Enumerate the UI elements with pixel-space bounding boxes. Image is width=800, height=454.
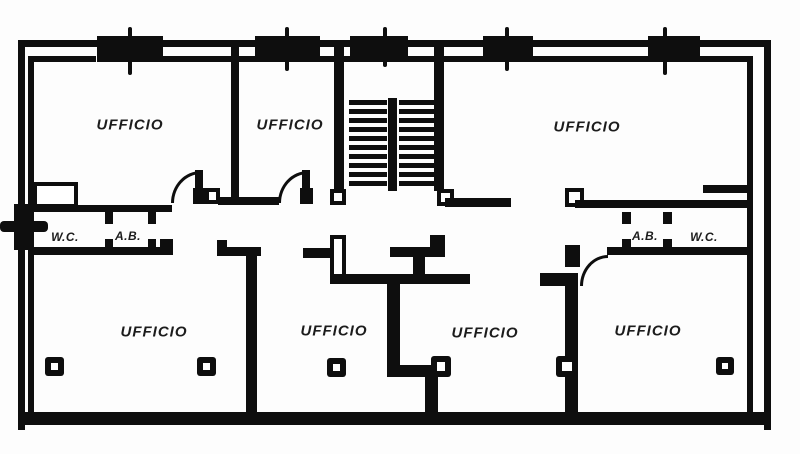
wall-end-block	[160, 239, 173, 255]
axis-tick-left	[0, 221, 48, 232]
pillar-axis-tick	[383, 27, 387, 67]
stair-divider	[388, 98, 397, 191]
window-band	[163, 56, 255, 62]
facade-pillar	[648, 36, 700, 62]
partition-bottom-offices	[246, 255, 257, 413]
door-jamb	[330, 189, 346, 205]
room-label-ufficio-top-left: UFFICIO	[97, 117, 164, 134]
room-label-ufficio-top-mid: UFFICIO	[257, 117, 324, 134]
compartment-stub	[622, 212, 631, 224]
wc-band-wall-top	[575, 200, 747, 208]
pillar-axis-tick	[663, 27, 667, 75]
partition-bottom-offices	[387, 284, 400, 372]
outer-wall-right	[764, 40, 771, 430]
partition-bottom-offices	[425, 371, 438, 413]
door-leaf	[195, 170, 203, 190]
wc-fixture	[33, 182, 78, 208]
door-leaf	[302, 170, 310, 190]
wc-band-wall-bottom	[607, 247, 747, 255]
inner-wall-right	[747, 56, 753, 412]
room-label-ufficio-bottom-3: UFFICIO	[452, 325, 519, 342]
corridor-wall	[445, 198, 511, 207]
wall-stub	[540, 273, 567, 286]
room-label-wc-left: W.C.	[51, 230, 79, 244]
compartment-stub	[663, 212, 672, 224]
compartment-stub	[105, 212, 113, 224]
compartment-stub	[148, 239, 156, 247]
window-band	[533, 56, 649, 62]
compartment-stub	[663, 239, 672, 247]
wc-band-wall-bottom	[34, 247, 173, 255]
column-marker	[556, 356, 578, 377]
room-label-ufficio-top-right: UFFICIO	[554, 119, 621, 136]
window-band	[34, 56, 96, 62]
room-label-wc-right: W.C.	[690, 230, 718, 244]
window-band	[406, 56, 484, 62]
corridor-wall	[333, 274, 470, 284]
corridor-wall	[218, 197, 279, 205]
compartment-stub	[105, 239, 113, 247]
stairwell-wall-left	[334, 47, 344, 191]
pillar-axis-tick	[128, 27, 132, 75]
floor-plan-canvas: UFFICIO UFFICIO UFFICIO UFFICIO UFFICIO …	[0, 0, 800, 454]
pillar-axis-tick	[505, 27, 509, 71]
facade-pillar	[350, 36, 408, 62]
column-marker	[716, 357, 734, 375]
column-marker	[197, 357, 216, 376]
room-label-ufficio-bottom-1: UFFICIO	[121, 324, 188, 341]
corridor-wall	[390, 247, 445, 257]
column-marker	[45, 357, 64, 376]
outer-wall-bottom	[18, 412, 771, 425]
window-band	[700, 56, 747, 62]
column-marker	[431, 356, 451, 377]
door-swing-arc	[580, 255, 608, 286]
partition-top-offices	[231, 47, 239, 199]
compartment-stub	[622, 239, 631, 247]
door-jamb-block	[193, 188, 205, 204]
door-jamb-block	[565, 245, 580, 267]
room-label-ufficio-bottom-2: UFFICIO	[301, 323, 368, 340]
door-jamb-block	[300, 188, 313, 204]
room-label-ab-left: A.B.	[115, 229, 141, 243]
stair-flight-right	[399, 100, 437, 190]
column-marker	[327, 358, 346, 377]
wall-stub	[430, 235, 445, 248]
room-label-ab-right: A.B.	[632, 229, 658, 243]
room-label-ufficio-bottom-4: UFFICIO	[615, 323, 682, 340]
stair-flight-left	[349, 100, 387, 190]
wc-fixture-shelf	[703, 185, 747, 193]
compartment-stub	[148, 212, 156, 224]
pillar-axis-tick	[285, 27, 289, 71]
partition-bottom-offices	[565, 273, 578, 413]
